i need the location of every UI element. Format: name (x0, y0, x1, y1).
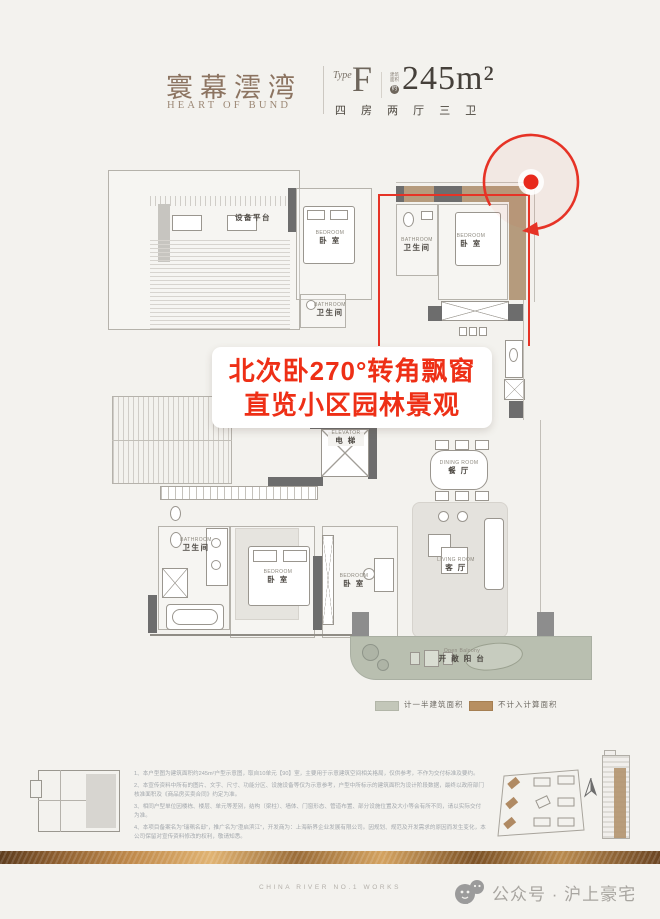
toilet-icon (170, 506, 181, 521)
key-plan-unit-highlight (86, 774, 116, 828)
ac-unit-icon (172, 215, 202, 231)
chair-icon (455, 491, 469, 501)
disclaimer-item: 4、本项目备案名为“瑞珮名邸”，推广名为“澄启滨江”，开发商为：上海新界企业发展… (134, 824, 486, 843)
room-label-text: 客 厅 (437, 564, 475, 573)
disclaimer-item: 2、本宣传资料中所有的图片、文字、尺寸、功能分区、设施设备等仅为示意参考，户型中… (134, 782, 486, 801)
pillow-icon (283, 550, 307, 562)
wall-segment (268, 477, 323, 486)
poster-canvas: 寰幕澐湾 HEART OF BUND Type F 建筑 面积 约 245m² … (0, 0, 660, 919)
key-plan-wing (30, 780, 42, 798)
type-label: Type (333, 70, 352, 81)
chair-icon (455, 440, 469, 450)
header-divider-2 (381, 72, 382, 98)
room-label-text: 餐 厅 (440, 467, 479, 476)
legend-swatch-excluded-area (469, 701, 493, 711)
north-arrow-icon (584, 778, 598, 798)
sink-icon (211, 560, 221, 570)
fridge-icon (504, 379, 525, 400)
chaise-icon (484, 518, 504, 590)
site-building-icon (505, 797, 518, 809)
room-label-balcony: Open Balcony 开 敞 阳 台 (439, 649, 486, 663)
cushion-icon (457, 511, 468, 522)
stairs-divider (112, 440, 232, 441)
platform-deck (150, 240, 290, 330)
wechat-account-label: 公众号 · 沪上豪宅 (492, 880, 636, 905)
callout-line2: 直览小区园林景观 (212, 388, 492, 422)
cushion-icon (438, 511, 449, 522)
wall-segment (368, 429, 377, 479)
pillar (352, 612, 369, 638)
site-building-icon (558, 776, 574, 784)
pillow-icon (253, 550, 277, 562)
legend-swatch-half-area (375, 701, 399, 711)
room-label-equipment: 设备平台 (235, 214, 271, 223)
disclaimer-item: 1、本户型图为建筑面积约245m²户型示意图，取自10单元【90】室，主要用于示… (134, 770, 486, 780)
room-label-text: 卧 室 (264, 576, 293, 585)
plant-icon (362, 644, 379, 661)
disclaimer-block: 1、本户型图为建筑面积约245m²户型示意图，取自10单元【90】室，主要用于示… (134, 770, 486, 845)
tower-unit-highlight (614, 768, 626, 838)
desk-icon (374, 558, 394, 592)
pillow-icon (330, 210, 348, 220)
site-plan (492, 768, 592, 843)
room-label-dining: DINING ROOM 餐 厅 (440, 461, 479, 475)
pillar (537, 612, 554, 638)
wall-segment (148, 595, 157, 633)
sink-icon (509, 348, 518, 362)
room-label-text: 卫生间 (314, 309, 346, 318)
wardrobe-icon (160, 486, 318, 500)
room-label-living: LIVING ROOM 客 厅 (437, 558, 475, 572)
room-label-bedroom-master: BEDROOM 卧 室 (264, 570, 293, 584)
gold-divider-bar (0, 851, 660, 864)
chair-icon (435, 440, 449, 450)
key-plan-line (60, 770, 61, 832)
callout-line1: 北次卧270°转角飘窗 (212, 354, 492, 388)
shower-icon (162, 568, 188, 598)
legend-label-excluded-area: 不计入计算面积 (498, 700, 558, 710)
sink-icon (211, 538, 221, 548)
area-note: 建筑 面积 (390, 72, 399, 82)
wall-segment (509, 401, 523, 418)
corner-window-annotation (478, 130, 588, 240)
equipment-hatch (150, 196, 298, 206)
chair-icon (475, 440, 489, 450)
wall-segment (313, 556, 322, 630)
site-building-icon (536, 796, 550, 808)
callout-bubble: 北次卧270°转角飘窗 直览小区园林景观 (212, 347, 492, 428)
chair-icon (475, 491, 489, 501)
disclaimer-item: 3、相同户型单位因楼栋、楼层、单元等差别，结构（梁柱）、墙体、门窗形态、管道布置… (134, 803, 486, 822)
area-approx-badge: 约 (390, 85, 399, 94)
room-label-bathroom-master: BATHROOM 卫生间 (180, 538, 212, 552)
bathtub-inner (172, 609, 218, 625)
site-building-icon (558, 818, 574, 826)
plant-icon (377, 659, 389, 671)
brand-name-en: HEART OF BUND (167, 100, 291, 111)
tower-roof (604, 750, 616, 756)
room-label-bathroom-mid: BATHROOM 卫生间 (314, 303, 346, 317)
room-label-bedroom-se: BEDROOM 卧 室 (340, 574, 369, 588)
wardrobe-icon (322, 535, 334, 625)
area-note-line2: 面积 (390, 77, 399, 82)
south-wall (150, 634, 356, 636)
room-label-text: 卧 室 (316, 237, 345, 246)
outdoor-table-icon (424, 650, 439, 667)
pillow-icon (307, 210, 325, 220)
room-label-text: 卫生间 (180, 544, 212, 553)
site-building-icon (507, 777, 520, 789)
type-value: F (352, 58, 372, 100)
room-label-text: 电 梯 (331, 437, 360, 446)
highlight-dot-icon (524, 175, 539, 190)
site-building-icon (534, 778, 550, 786)
legend-label-half-area: 计一半建筑面积 (404, 700, 464, 710)
room-label-text: 开 敞 阳 台 (439, 655, 486, 664)
area-value: 245m² (402, 60, 495, 98)
room-label-text: 设备平台 (235, 214, 271, 223)
site-building-icon (503, 817, 516, 829)
room-label-bedroom-nw: BEDROOM 卧 室 (316, 231, 345, 245)
site-building-icon (534, 818, 550, 826)
wechat-icon (452, 878, 486, 906)
room-label-text: 卧 室 (340, 580, 369, 589)
chair-icon (435, 491, 449, 501)
site-building-icon (558, 798, 574, 806)
header-divider (323, 66, 324, 114)
layout-line: 四 房 两 厅 三 卫 (335, 102, 482, 118)
east-wall-line (540, 420, 541, 615)
outdoor-chair-icon (410, 652, 420, 665)
room-label-elevator: ELEVATOR 电 梯 (331, 431, 360, 445)
key-plan-line (38, 800, 86, 801)
